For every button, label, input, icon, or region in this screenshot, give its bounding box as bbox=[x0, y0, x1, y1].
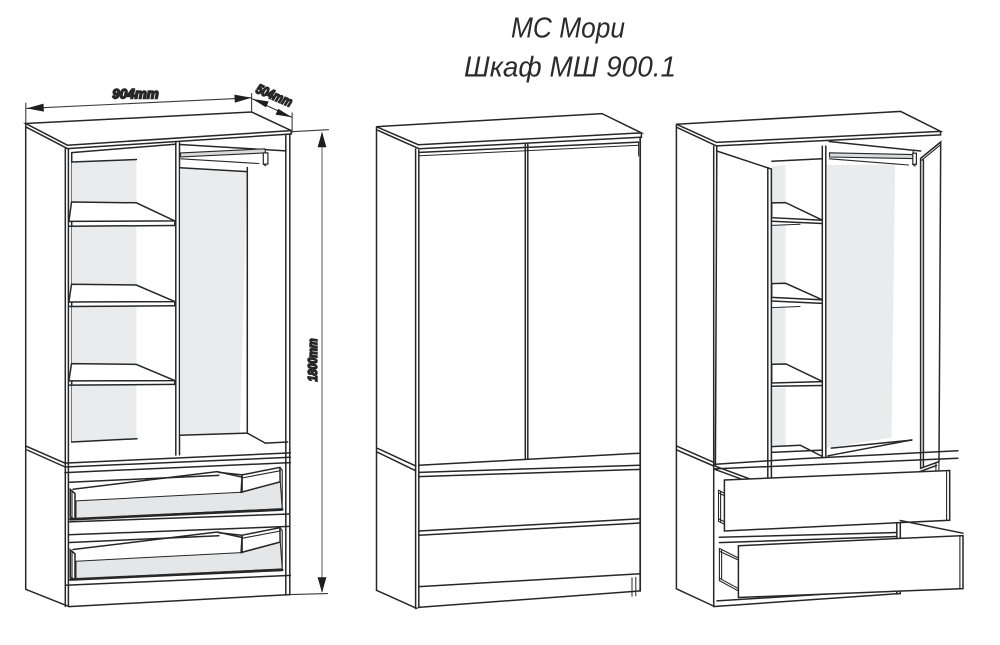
svg-text:904mm: 904mm bbox=[112, 87, 159, 102]
svg-text:Шкаф МШ 900.1: Шкаф МШ 900.1 bbox=[464, 51, 676, 83]
svg-text:МС Мори: МС Мори bbox=[511, 12, 625, 44]
svg-text:1800mm: 1800mm bbox=[306, 339, 320, 382]
